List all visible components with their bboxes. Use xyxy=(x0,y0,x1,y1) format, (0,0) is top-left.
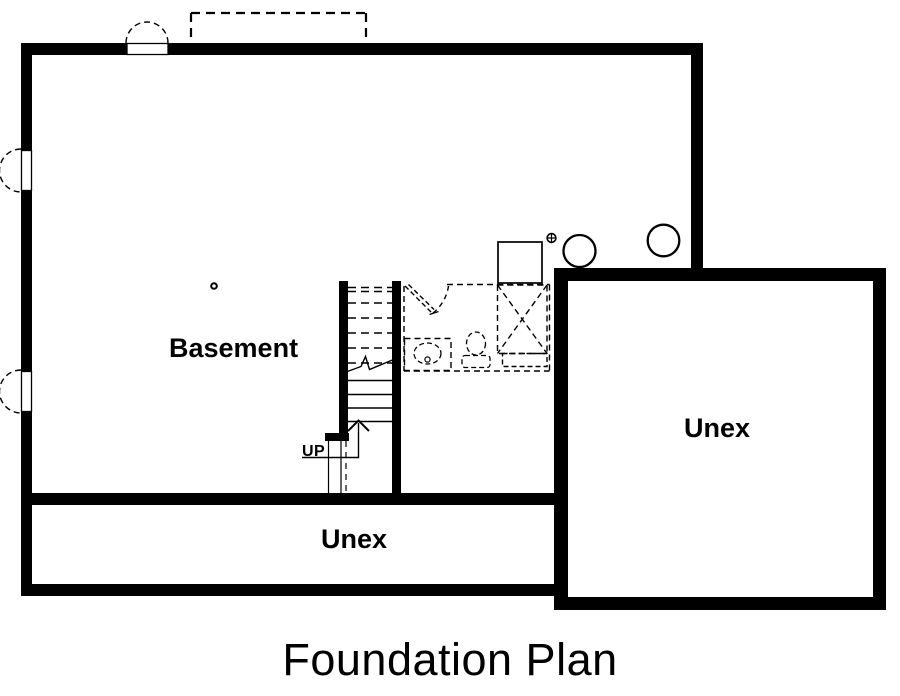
wall-basement-bottom xyxy=(21,493,568,505)
furnace-icon xyxy=(498,242,542,283)
wall-unex-square-bottom xyxy=(554,597,886,610)
plan-linework xyxy=(0,0,900,696)
floor-drain-icon xyxy=(547,234,556,243)
wall-unex-strip-bottom xyxy=(21,584,568,596)
wall-unex-square-left xyxy=(554,268,568,610)
shower-curb xyxy=(503,354,548,367)
lally-column-icon xyxy=(564,235,596,267)
sink-drain xyxy=(425,357,430,362)
wall-right-basement xyxy=(691,43,703,281)
basement-window-icon xyxy=(22,372,32,412)
shower-icon xyxy=(498,285,548,367)
toilet-icon xyxy=(462,332,490,368)
stair-break-line-icon xyxy=(346,357,396,373)
stair-treads-lower xyxy=(348,381,392,422)
toilet-tank xyxy=(462,356,490,368)
future-bath xyxy=(404,285,550,372)
stair-up-label: UP xyxy=(302,444,325,460)
lally-column-icon xyxy=(648,225,680,257)
foundation-plan-canvas: Basement Unex Unex UP Foundation Plan xyxy=(0,0,900,696)
stair-treads-upper xyxy=(348,288,392,364)
wall-top xyxy=(21,43,703,55)
toilet-bowl xyxy=(467,332,486,355)
porch-outline-icon xyxy=(191,13,366,43)
door-leaf xyxy=(405,286,431,312)
door-swing-icon xyxy=(405,285,449,315)
basement-window-icon xyxy=(22,151,32,191)
foundation-walls xyxy=(21,43,886,610)
unex-right-room-label: Unex xyxy=(684,415,750,442)
basement-room-label: Basement xyxy=(169,335,298,362)
wall-left xyxy=(21,43,32,596)
unex-lower-room-label: Unex xyxy=(321,526,387,553)
basement-window-icon xyxy=(127,44,168,55)
wall-unex-square-right xyxy=(873,268,886,610)
stair-run-icon xyxy=(302,281,401,493)
stair-wall-stub xyxy=(325,433,349,441)
vanity-sink-icon xyxy=(405,339,452,371)
window-areaway-arc-icon xyxy=(0,370,21,413)
door-leaf xyxy=(409,285,435,310)
window-areaway-arc-icon xyxy=(126,22,168,43)
window-areaway-arc-icon xyxy=(0,149,21,192)
sink-bowl xyxy=(414,343,441,364)
stair-wall-left xyxy=(339,281,348,441)
stair-wall-right xyxy=(392,281,401,493)
plan-title: Foundation Plan xyxy=(0,637,900,682)
wall-unex-square-top xyxy=(554,268,886,281)
point-marker-icon xyxy=(211,283,217,289)
door-arc xyxy=(433,286,449,313)
